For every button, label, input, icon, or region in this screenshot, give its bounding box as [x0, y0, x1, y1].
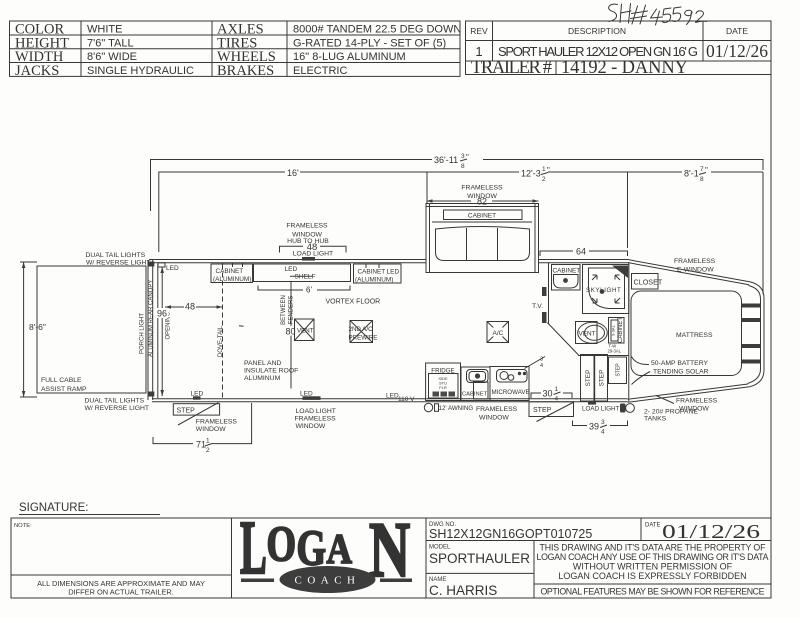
svg-text:CABINET: CABINET	[462, 392, 488, 398]
svg-text:TENDING SOLAR: TENDING SOLAR	[653, 369, 709, 376]
svg-text:SH12X12GN16GOPT010725: SH12X12GN16GOPT010725	[429, 527, 592, 541]
svg-text:STEP: STEP	[599, 370, 606, 387]
svg-text:PANEL AND: PANEL AND	[244, 360, 281, 367]
svg-text:LOGAN COACH IS EXPRESSLY FORBI: LOGAN COACH IS EXPRESSLY FORBIDDEN	[558, 571, 746, 581]
svg-text:7'6" TALL: 7'6" TALL	[87, 37, 134, 49]
svg-text:8'6" WIDE: 8'6" WIDE	[87, 51, 137, 63]
svg-text:96: 96	[157, 309, 167, 319]
svg-text:MICROWAVE: MICROWAVE	[492, 389, 530, 396]
svg-text:16" 8-LUG ALUMINUM: 16" 8-LUG ALUMINUM	[293, 51, 406, 63]
svg-text:A: A	[327, 526, 352, 573]
svg-text:SPORTHAULER: SPORTHAULER	[429, 551, 530, 566]
svg-text:FRAMELESS: FRAMELESS	[295, 416, 337, 423]
svg-text:01/12/26: 01/12/26	[662, 521, 760, 543]
svg-text:2ND A/C: 2ND A/C	[349, 326, 374, 333]
svg-text:CABINET: CABINET	[216, 268, 244, 275]
svg-text:FLR: FLR	[439, 385, 447, 390]
svg-text:2: 2	[542, 176, 546, 183]
svg-text:LED: LED	[387, 269, 400, 276]
svg-text:48: 48	[185, 302, 195, 312]
svg-text:STEP: STEP	[585, 370, 592, 387]
svg-text:BETWEEN: BETWEEN	[281, 295, 287, 325]
svg-text:FRAMELESS: FRAMELESS	[461, 185, 503, 192]
svg-text:CABINET: CABINET	[468, 213, 496, 220]
svg-text:7: 7	[700, 166, 704, 173]
svg-text:(ALUMINUM): (ALUMINUM)	[355, 277, 393, 284]
svg-text:16': 16'	[287, 168, 299, 178]
svg-text:CABINET: CABINET	[553, 267, 581, 274]
svg-text:8: 8	[461, 163, 465, 170]
svg-text:3: 3	[601, 419, 605, 426]
svg-text:MODEL: MODEL	[429, 545, 451, 551]
svg-text:COACH: COACH	[294, 575, 360, 587]
svg-text:VENT: VENT	[579, 331, 596, 338]
svg-text:": "	[547, 166, 550, 175]
svg-text:BRAKES: BRAKES	[217, 63, 274, 79]
svg-text:12'-3: 12'-3	[521, 169, 541, 179]
svg-text:110 V: 110 V	[398, 396, 415, 403]
svg-text:W/ REVERSE LIGHT: W/ REVERSE LIGHT	[85, 405, 150, 412]
svg-text:PORCH LIGHT: PORCH LIGHT	[140, 313, 146, 354]
svg-text:FRAMELESS: FRAMELESS	[674, 258, 716, 265]
svg-text:L: L	[240, 507, 267, 591]
svg-text:DUAL TAIL LIGHTS: DUAL TAIL LIGHTS	[85, 398, 145, 405]
svg-text:4: 4	[601, 429, 605, 436]
svg-text:3: 3	[540, 357, 543, 363]
svg-text:29-3AL: 29-3AL	[608, 349, 622, 354]
svg-text:82: 82	[477, 197, 487, 207]
svg-text:VORTEX FLOOR: VORTEX FLOOR	[326, 299, 381, 306]
svg-text:E-WINDOW: E-WINDOW	[677, 267, 714, 274]
svg-text:DATE: DATE	[645, 523, 661, 529]
svg-text:NOTE:: NOTE:	[14, 523, 32, 529]
svg-text:ELECTRIC: ELECTRIC	[293, 65, 347, 77]
svg-text:": "	[705, 166, 708, 175]
svg-text:SPORT HAULER 12X12 OPEN GN 16': SPORT HAULER 12X12 OPEN GN 16' G	[498, 44, 698, 59]
svg-text:2- 20# PROPANE: 2- 20# PROPANE	[644, 409, 698, 416]
svg-text:WHITE: WHITE	[87, 24, 122, 36]
svg-text:8: 8	[700, 176, 704, 183]
svg-text:VENT: VENT	[297, 328, 314, 335]
svg-text:SHELF: SHELF	[295, 274, 316, 281]
svg-text:LED: LED	[285, 266, 298, 273]
svg-text:01/12/26: 01/12/26	[706, 41, 768, 61]
svg-text:71: 71	[196, 440, 206, 450]
svg-text:64: 64	[576, 247, 586, 257]
svg-text:1: 1	[475, 44, 482, 59]
svg-text:14192 - DANNY: 14192 - DANNY	[561, 58, 688, 78]
svg-text:8'-1: 8'-1	[684, 169, 699, 179]
svg-text:REV: REV	[470, 26, 488, 36]
svg-text:ALUMINUM REAR CANOPY: ALUMINUM REAR CANOPY	[149, 280, 155, 357]
svg-text:12' AWNING: 12' AWNING	[439, 405, 474, 412]
svg-text:WINDOW: WINDOW	[296, 423, 326, 430]
svg-text:JACKS: JACKS	[15, 63, 59, 79]
svg-text:ALUMINUM: ALUMINUM	[244, 375, 281, 382]
svg-text:WINDOW: WINDOW	[196, 426, 226, 433]
svg-text:FENDERS: FENDERS	[289, 296, 295, 325]
svg-text:TANKS: TANKS	[644, 416, 667, 423]
svg-text:STEP: STEP	[177, 408, 196, 415]
svg-text:C. HARRIS: C. HARRIS	[429, 583, 497, 598]
svg-text:LOAD LIGHT: LOAD LIGHT	[296, 408, 336, 415]
svg-text:SINGLE HYDRAULIC: SINGLE HYDRAULIC	[87, 65, 194, 77]
svg-text:MATTRESS: MATTRESS	[676, 332, 713, 339]
svg-text:DUAL TAIL LIGHTS: DUAL TAIL LIGHTS	[86, 252, 146, 259]
svg-text:1: 1	[206, 438, 210, 445]
svg-text:LOGAN COACH ANY USE OF THIS DR: LOGAN COACH ANY USE OF THIS DRAWING OR I…	[537, 552, 769, 562]
svg-text:1: 1	[542, 166, 546, 173]
svg-text:OPTIONAL FEATURES MAY BE SHOWN: OPTIONAL FEATURES MAY BE SHOWN FOR REFER…	[541, 587, 765, 597]
svg-text:T.V.: T.V.	[532, 303, 543, 310]
svg-text:LED: LED	[166, 265, 179, 272]
svg-text:THIS DRAWING AND IT'S DATA ARE: THIS DRAWING AND IT'S DATA ARE THE PROPE…	[540, 543, 767, 553]
svg-text:LOAD LIGHT: LOAD LIGHT	[582, 406, 620, 413]
svg-text:FRAMELESS: FRAMELESS	[286, 223, 328, 230]
svg-text:36'-11: 36'-11	[434, 155, 458, 165]
svg-text:FRAMELESS: FRAMELESS	[476, 406, 518, 413]
svg-text:STEP: STEP	[616, 363, 622, 377]
svg-text:": "	[466, 153, 469, 162]
svg-text:A/C: A/C	[493, 330, 504, 337]
svg-text:8000# TANDEM 22.5 DEG DOWN: 8000# TANDEM 22.5 DEG DOWN	[293, 24, 461, 36]
svg-text:3: 3	[461, 153, 465, 160]
svg-text:CLOSET: CLOSET	[634, 278, 663, 287]
svg-text:DESCRIPTION: DESCRIPTION	[568, 26, 626, 36]
svg-text:DOVE-TAIL: DOVE-TAIL	[218, 325, 224, 357]
svg-text:1: 1	[555, 386, 559, 393]
svg-text:CABINET: CABINET	[358, 269, 386, 276]
svg-text:WITHOUT WRITTEN PERMISSION OF: WITHOUT WRITTEN PERMISSION OF	[573, 562, 733, 572]
svg-text:30: 30	[543, 389, 553, 399]
svg-text:(ALUMINUM): (ALUMINUM)	[213, 276, 251, 283]
svg-text:WINDOW: WINDOW	[479, 415, 509, 422]
svg-text:LED: LED	[386, 393, 399, 400]
svg-text:G-RATED 14-PLY - SET OF (5): G-RATED 14-PLY - SET OF (5)	[293, 37, 446, 49]
svg-text:2: 2	[206, 447, 210, 454]
svg-text:FRAMELESS: FRAMELESS	[196, 419, 238, 426]
svg-text:FULL CABLE: FULL CABLE	[41, 377, 82, 384]
svg-text:4: 4	[540, 363, 543, 369]
svg-text:W/ REVERSE LIGHT: W/ REVERSE LIGHT	[86, 260, 151, 267]
svg-text:FRAMELESS: FRAMELESS	[676, 398, 718, 405]
svg-text:LOAD LIGHT: LOAD LIGHT	[293, 251, 333, 258]
svg-text:CABINET: CABINET	[618, 317, 624, 343]
svg-text:DATE: DATE	[726, 26, 748, 36]
svg-text:39: 39	[589, 422, 599, 432]
svg-text:STEP: STEP	[533, 407, 552, 414]
svg-text:SIGNATURE:: SIGNATURE:	[19, 502, 88, 514]
svg-text:INSULATE ROOF: INSULATE ROOF	[244, 368, 298, 375]
svg-text:6': 6'	[306, 286, 312, 295]
svg-text:DIFFER ON ACTUAL TRAILER.: DIFFER ON ACTUAL TRAILER.	[68, 588, 174, 597]
svg-text:9-3AL: 9-3AL	[611, 324, 616, 335]
svg-text:4: 4	[555, 396, 559, 403]
svg-text:TRAILER #: TRAILER #	[471, 58, 552, 78]
svg-text:PREWIRE: PREWIRE	[349, 335, 378, 342]
svg-text:50-AMP BATTERY: 50-AMP BATTERY	[651, 360, 709, 367]
svg-text:8'-6": 8'-6"	[29, 322, 46, 332]
svg-text:FRIDGE: FRIDGE	[431, 368, 454, 375]
svg-text:ASSIST RAMP: ASSIST RAMP	[41, 386, 87, 393]
svg-text:O: O	[267, 515, 297, 571]
